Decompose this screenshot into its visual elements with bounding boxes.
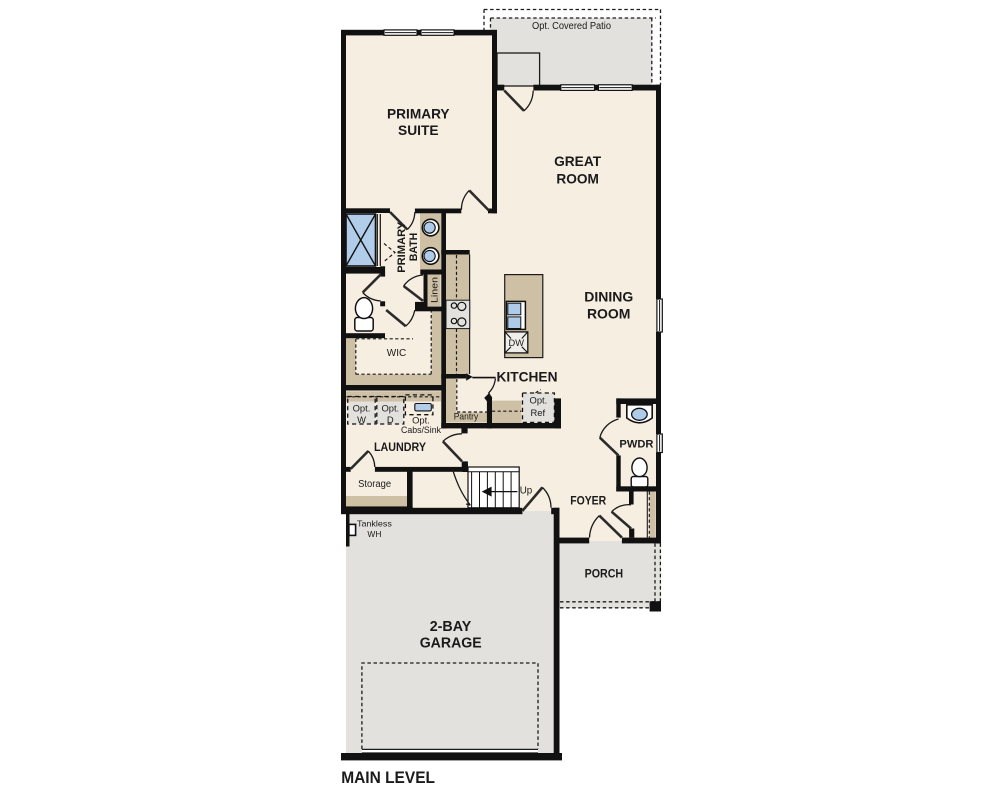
svg-text:PORCH: PORCH xyxy=(585,568,624,581)
svg-text:GREAT: GREAT xyxy=(554,153,601,169)
svg-text:Cabs/Sink: Cabs/Sink xyxy=(401,424,441,435)
svg-text:FOYER: FOYER xyxy=(570,493,606,507)
svg-text:DW: DW xyxy=(509,338,525,348)
svg-text:BATH: BATH xyxy=(408,233,420,262)
svg-text:Storage: Storage xyxy=(358,479,392,490)
svg-text:MAIN LEVEL: MAIN LEVEL xyxy=(341,768,435,787)
svg-text:Opt.: Opt. xyxy=(530,395,548,406)
svg-text:PRIMARY: PRIMARY xyxy=(387,106,450,122)
svg-text:Linen: Linen xyxy=(429,277,439,303)
svg-text:Up: Up xyxy=(520,485,533,496)
svg-text:KITCHEN: KITCHEN xyxy=(497,369,558,385)
svg-text:ROOM: ROOM xyxy=(556,171,599,187)
svg-text:WIC: WIC xyxy=(387,348,407,359)
svg-text:Ref: Ref xyxy=(531,407,546,418)
svg-text:Opt. Covered Patio: Opt. Covered Patio xyxy=(532,21,611,32)
svg-text:Pantry: Pantry xyxy=(454,411,479,422)
svg-text:WH: WH xyxy=(367,529,381,539)
svg-text:ROOM: ROOM xyxy=(587,306,631,322)
svg-text:Opt.: Opt. xyxy=(381,403,399,414)
svg-text:Tankless: Tankless xyxy=(357,519,392,529)
svg-text:SUITE: SUITE xyxy=(398,122,439,138)
svg-text:GARAGE: GARAGE xyxy=(420,635,482,651)
svg-text:Opt.: Opt. xyxy=(353,403,371,414)
svg-text:2-BAY: 2-BAY xyxy=(430,619,472,635)
svg-text:LAUNDRY: LAUNDRY xyxy=(374,441,426,454)
svg-text:W: W xyxy=(357,414,366,425)
svg-text:DINING: DINING xyxy=(584,288,633,304)
svg-text:D: D xyxy=(387,414,394,425)
svg-text:PWDR: PWDR xyxy=(619,438,653,450)
svg-text:PRIMARY: PRIMARY xyxy=(396,221,408,273)
